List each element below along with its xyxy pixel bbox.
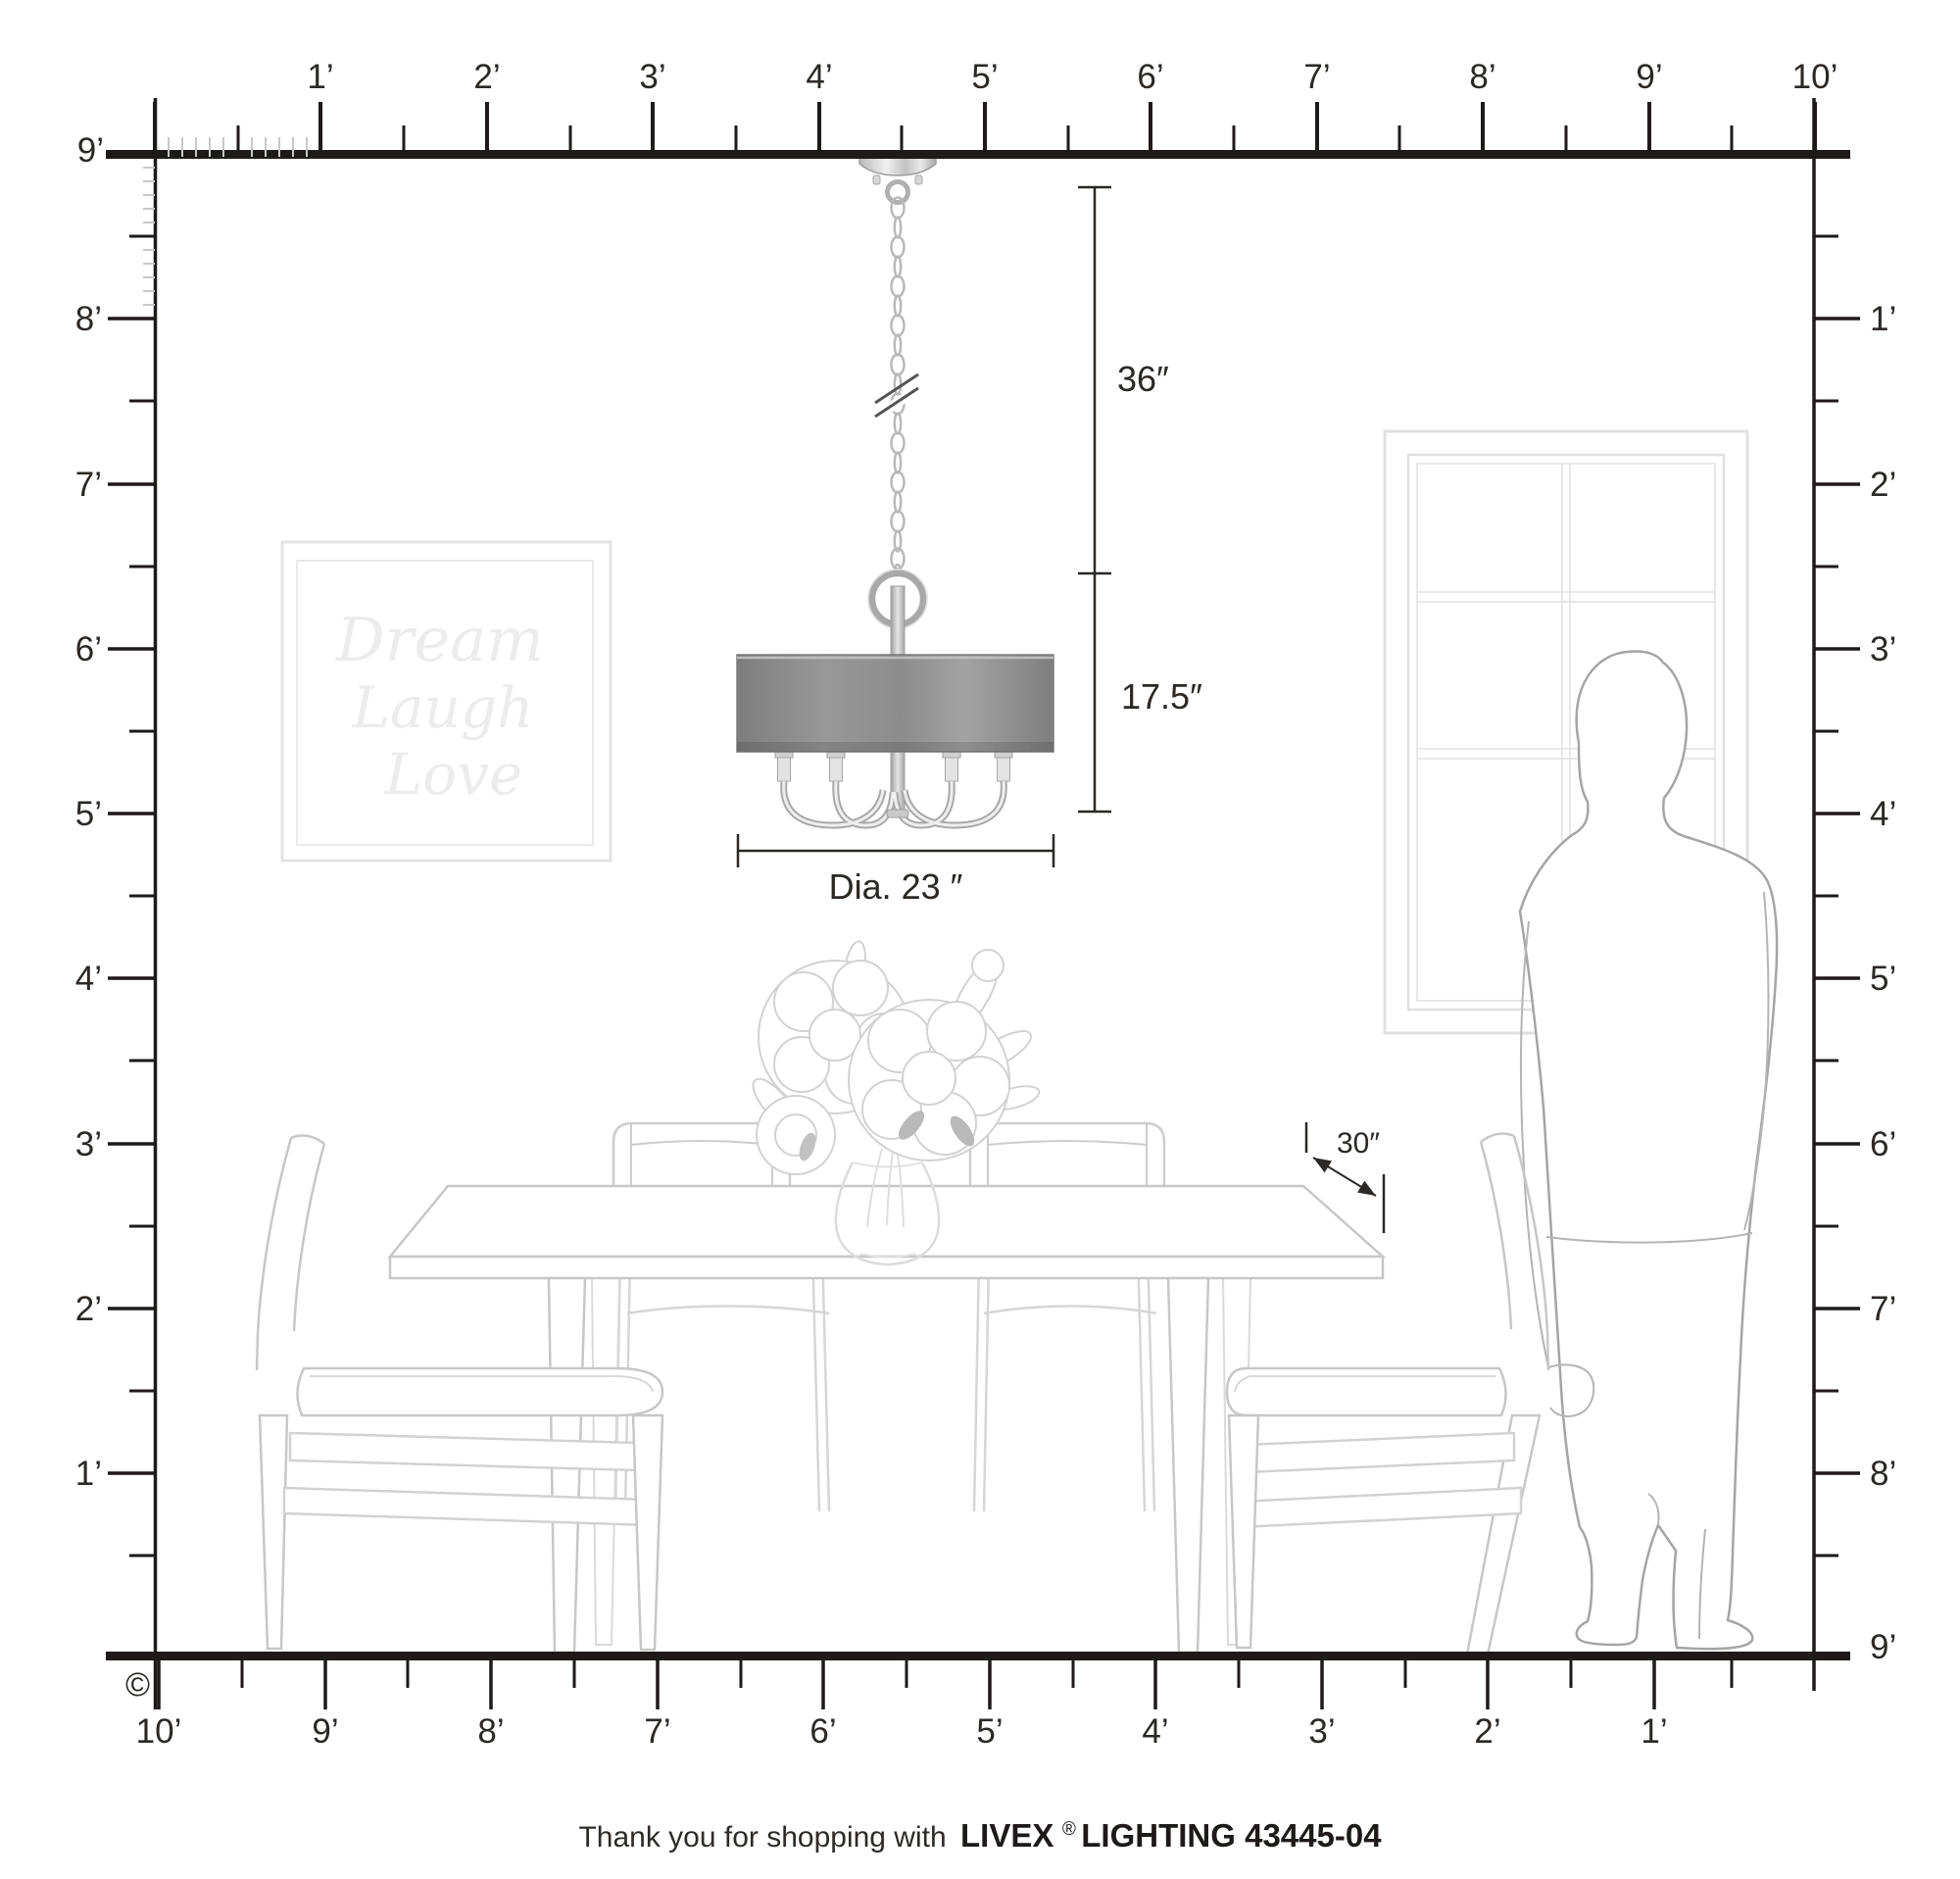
ruler-label: 4’ xyxy=(75,960,102,998)
scene-svg: Dream Laugh Love xyxy=(0,0,1960,1879)
ruler-label: 1’ xyxy=(1641,1712,1667,1751)
bottom-ruler-labels: 10’ 9’ 8’ 7’ 6’ 5’ 4’ 3’ 2’ 1’ xyxy=(136,1712,1668,1751)
canopy-screw xyxy=(873,175,880,184)
ruler-label: 2’ xyxy=(473,58,500,96)
ruler-label: 9’ xyxy=(1636,58,1662,96)
body-height-label: 17.5″ xyxy=(1121,676,1202,717)
floor-line xyxy=(106,1652,1850,1660)
ruler-label: 8’ xyxy=(1469,58,1495,96)
ruler-label: 9’ xyxy=(312,1712,338,1751)
sleeve xyxy=(775,751,793,781)
right-ruler-labels: 1’ 2’ 3’ 4’ 5’ 6’ 7’ 8’ 9’ xyxy=(1870,300,1896,1666)
left-ruler: 9’ 8’ 7’ 6’ 5’ 4’ 3’ 2’ 1’ xyxy=(75,98,156,1709)
ruler-label: 5’ xyxy=(75,795,102,833)
product-dimension-diagram: Dream Laugh Love xyxy=(0,0,1960,1879)
ruler-label: 6’ xyxy=(1137,58,1163,96)
ruler-label: 5’ xyxy=(976,1712,1003,1751)
ruler-label: 8’ xyxy=(477,1712,504,1751)
chair-front-leg xyxy=(633,1415,662,1650)
ruler-label: 1’ xyxy=(307,58,333,96)
ruler-label: 4’ xyxy=(1870,795,1896,833)
ruler-label: 3’ xyxy=(75,1125,102,1163)
ceiling-line xyxy=(106,150,1850,159)
vertical-dimension-line xyxy=(1078,187,1111,812)
diameter-dimension-line xyxy=(738,834,1053,867)
table-leg-front-right xyxy=(1168,1278,1208,1653)
ruler-label: 6’ xyxy=(75,630,102,668)
left-ruler-labels: 9’ 8’ 7’ 6’ 5’ 4’ 3’ 2’ 1’ xyxy=(75,131,104,1493)
copyright-icon: © xyxy=(125,1666,150,1704)
ruler-label: 10’ xyxy=(136,1712,182,1751)
ruler-label: 3’ xyxy=(1308,1712,1335,1751)
ruler-label: 6’ xyxy=(809,1712,836,1751)
art-word-love: Love xyxy=(384,741,523,808)
shade-bottom-trim xyxy=(737,742,1053,752)
table-apron xyxy=(390,1257,1383,1278)
ruler-label: 5’ xyxy=(971,58,998,96)
footer-text: Thank you for shopping with LIVEX ® LIGH… xyxy=(578,1817,1382,1854)
ruler-label: 7’ xyxy=(1303,58,1330,96)
diameter-label: Dia. 23 ″ xyxy=(829,866,963,907)
ruler-label: 6’ xyxy=(1870,1125,1896,1163)
ruler-label: 3’ xyxy=(1870,630,1896,668)
ruler-label: 1’ xyxy=(75,1455,102,1493)
right-ruler: 1’ 2’ 3’ 4’ 5’ 6’ 7’ 8’ 9’ xyxy=(1814,98,1896,1691)
footer-prefix: Thank you for shopping with xyxy=(578,1821,955,1854)
ruler-label: 2’ xyxy=(1870,466,1896,504)
ruler-label: 7’ xyxy=(1870,1290,1896,1328)
ruler-label: 9’ xyxy=(77,131,104,170)
ruler-label: 9’ xyxy=(1870,1628,1896,1666)
registered-trademark-icon: ® xyxy=(1062,1819,1076,1840)
canopy-screw xyxy=(915,175,922,184)
ruler-label: 7’ xyxy=(644,1712,670,1751)
drum-shade xyxy=(737,655,1053,752)
ruler-label: 4’ xyxy=(1142,1712,1168,1751)
flower-bud xyxy=(972,950,1004,981)
canopy-loop xyxy=(888,182,908,203)
peony-small xyxy=(757,1096,835,1174)
brand-name: LIVEX xyxy=(960,1817,1053,1854)
chair-stretcher-upper xyxy=(290,1433,637,1470)
art-word-laugh: Laugh xyxy=(352,674,534,741)
hang-height-label: 36″ xyxy=(1117,359,1169,399)
top-ruler-labels: 1’ 2’ 3’ 4’ 5’ 6’ 7’ 8’ 9’ 10’ xyxy=(307,58,1837,96)
chair-back-post xyxy=(1481,1134,1548,1370)
stem-finial xyxy=(887,810,908,817)
ruler-label: 8’ xyxy=(75,300,102,338)
top-ruler: 1’ 2’ 3’ 4’ 5’ 6’ 7’ 8’ 9’ 10’ xyxy=(106,58,1850,159)
chair-back-post xyxy=(257,1136,324,1370)
pendant-fixture xyxy=(737,153,1053,825)
back-chair-right xyxy=(970,1123,1164,1511)
person-outline xyxy=(1520,652,1777,1650)
chair-stretcher-lower xyxy=(1241,1488,1521,1527)
clearance-label: 30″ xyxy=(1337,1127,1380,1160)
ruler-label: 5’ xyxy=(1870,960,1896,998)
ruler-label: 2’ xyxy=(1474,1712,1500,1751)
chair-stretcher-upper xyxy=(1247,1433,1514,1472)
person-silhouette xyxy=(1520,652,1777,1650)
brand-suffix-sku: LIGHTING 43445-04 xyxy=(1081,1817,1382,1854)
ruler-label: 3’ xyxy=(639,58,665,96)
wall-art-frame: Dream Laugh Love xyxy=(282,542,611,861)
sleeve xyxy=(995,751,1012,781)
peony-large-right xyxy=(849,1000,1009,1161)
sleeve xyxy=(943,751,960,781)
sleeve xyxy=(827,751,845,781)
ruler-label: 8’ xyxy=(1870,1455,1896,1493)
clearance-arrow xyxy=(1313,1158,1376,1196)
bottom-ruler-half-ticks xyxy=(242,1660,1732,1688)
ruler-label: 1’ xyxy=(1870,300,1896,338)
chair-seat-edge xyxy=(984,1307,1156,1314)
flower-bouquet xyxy=(747,940,1042,1174)
ruler-label: 10’ xyxy=(1792,58,1838,96)
left-ruler-half-ticks xyxy=(129,236,155,1556)
ruler-label: 2’ xyxy=(75,1290,102,1328)
ruler-label: 4’ xyxy=(806,58,832,96)
chair-seat-edge xyxy=(627,1307,829,1314)
art-word-dream: Dream xyxy=(335,604,544,675)
right-ruler-half-ticks xyxy=(1814,236,1838,1556)
bottom-ruler: 10’ 9’ 8’ 7’ 6’ 5’ 4’ 3’ 2’ 1’ xyxy=(106,1652,1850,1751)
ruler-label: 7’ xyxy=(75,466,102,504)
chair-rear-leg xyxy=(260,1415,287,1649)
